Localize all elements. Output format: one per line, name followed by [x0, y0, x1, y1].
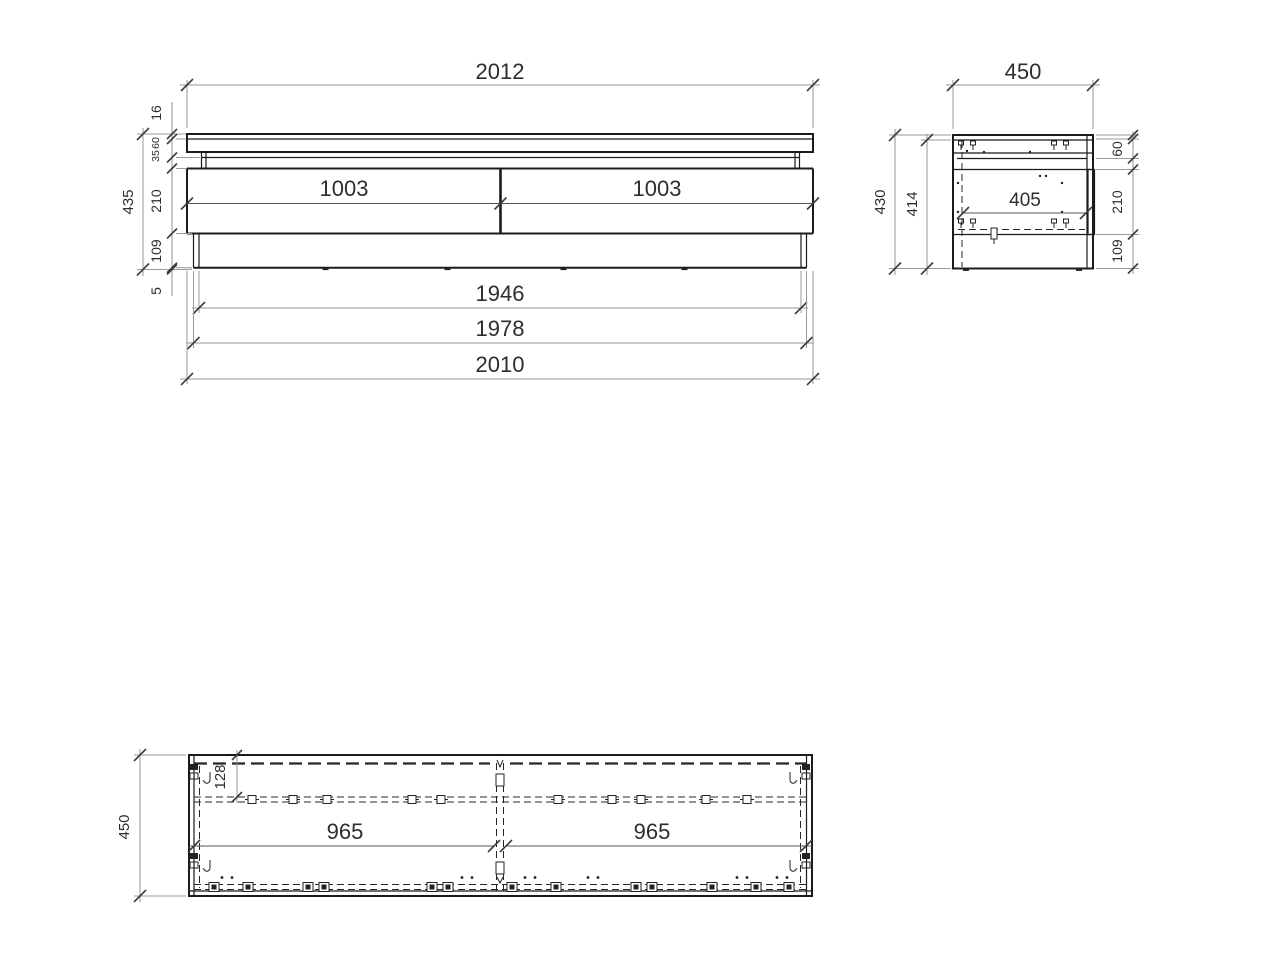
front-dim-435: 435 [120, 128, 149, 276]
front-dim-1003-left-label: 1003 [320, 176, 369, 201]
front-dim-16-label: 16 [148, 105, 164, 121]
technical-drawing: 2012 1003 1003 16 [0, 0, 1270, 953]
front-dim-210-label: 210 [148, 189, 164, 213]
front-dim-435-label: 435 [120, 189, 137, 214]
plan-dim-450-label: 450 [116, 814, 133, 839]
side-view: 450 405 430 414 [872, 59, 1139, 275]
front-dim-2012: 2012 [180, 59, 820, 128]
plan-dim-128: 128 [212, 750, 242, 803]
plan-dim-965: 965 965 [188, 819, 812, 852]
front-dim-5-label: 5 [148, 287, 164, 295]
front-dim-35-label: 35 [150, 150, 162, 162]
side-dim-450-label: 450 [1005, 59, 1042, 84]
plan-dim-965-right-label: 965 [634, 819, 671, 844]
front-dim-1946-label: 1946 [476, 281, 525, 306]
front-top-panel [187, 134, 813, 152]
front-dim-109-label: 109 [148, 239, 164, 263]
front-cabinet-outline [187, 134, 813, 270]
front-view: 2012 1003 1003 16 [120, 59, 820, 385]
side-dim-210-label: 210 [1109, 190, 1125, 214]
plan-dim-450: 450 [116, 749, 186, 902]
front-dim-1978-label: 1978 [476, 316, 525, 341]
drawing-sheet: 2012 1003 1003 16 [0, 0, 1270, 953]
side-dim-109-label: 109 [1109, 239, 1125, 263]
plan-dim-965-left-label: 965 [327, 819, 364, 844]
side-dim-414: 414 [904, 134, 951, 275]
front-dim-1946: 1946 [192, 271, 808, 314]
side-dim-450: 450 [946, 59, 1100, 129]
side-dim-405: 405 [957, 190, 1092, 219]
front-dim-2010-label: 2010 [476, 352, 525, 377]
side-dim-60-label: 60 [1109, 141, 1125, 157]
front-dim-1003-right-label: 1003 [633, 176, 682, 201]
plan-dim-128-label: 128 [212, 764, 229, 789]
front-dim-60-label: 60 [150, 137, 162, 149]
front-dim-2012-label: 2012 [476, 59, 525, 84]
side-dim-height-chain: 60 210 109 [1096, 130, 1139, 274]
side-dim-414-label: 414 [904, 191, 921, 216]
plan-view: 965 965 128 450 [116, 749, 812, 902]
plan-hardware-fittings [190, 764, 810, 892]
side-dim-405-label: 405 [1009, 190, 1041, 211]
side-dim-430-label: 430 [872, 189, 889, 214]
plan-dowel-dots [221, 876, 789, 879]
